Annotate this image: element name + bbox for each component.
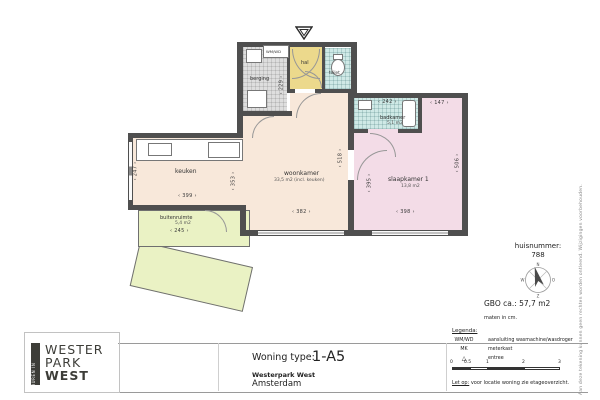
- dim-woonkamer-height: 353: [230, 172, 236, 191]
- svg-text:O: O: [552, 278, 555, 283]
- gbo-value: GBO ca.: 57,7 m2: [484, 299, 550, 308]
- floorplan-sheet: WM/WD berging hal toilet keuken woonkame…: [0, 0, 600, 400]
- keuken-label: keuken: [175, 168, 197, 175]
- berging-cabinet: [246, 49, 262, 63]
- entree-arrow-icon: [295, 26, 313, 40]
- logo-line3: WEST: [45, 370, 89, 383]
- woonkamer-floor-upper: [290, 93, 348, 118]
- wall-slaapkamer-top: [354, 93, 468, 98]
- woonkamer-label: woonkamer: [284, 170, 319, 177]
- wall-berging-left: [237, 42, 243, 138]
- wall-woon-slaap-upper: [348, 93, 354, 150]
- dim-keuken-width: 399: [178, 193, 197, 199]
- wall-woon-slaap-lower: [348, 180, 354, 236]
- wall-badkamer-bottom-left: [354, 129, 368, 133]
- slaapkamer-label: slaapkamer 1: [388, 176, 429, 183]
- svg-text:W: W: [521, 278, 525, 283]
- compass-icon: N O Z W: [520, 262, 556, 298]
- hal-floor: [290, 47, 322, 89]
- strip-divider-1: [218, 343, 219, 391]
- buitenruimte-area: 5,4 m2: [175, 221, 191, 226]
- dim-slaapkamer-width: 398: [396, 209, 415, 215]
- washer-label: WM/WD: [266, 49, 281, 54]
- window-woonkamer: [258, 231, 344, 235]
- dim-woonkamer-width: 382: [292, 209, 311, 215]
- badkamer-area: 5,1 m2: [387, 121, 403, 126]
- woning-type-value: 1-A5: [312, 349, 345, 365]
- dim-berging-height: 229: [278, 76, 284, 95]
- wall-badkamer-right: [418, 95, 422, 133]
- bathtub: [402, 100, 416, 127]
- wall-top: [237, 42, 357, 47]
- city-name: Amsterdam: [252, 379, 301, 389]
- buitenruimte-floor-lower: [130, 241, 253, 312]
- wall-slaapkamer-right: [462, 93, 468, 236]
- title-strip: [118, 343, 588, 393]
- wall-hal-toilet: [322, 47, 325, 91]
- woonkamer-area: 33,5 m2 (incl. keuken): [274, 178, 324, 183]
- wall-berging-bottom: [237, 111, 292, 116]
- wall-keuken-top: [128, 133, 243, 138]
- berging-label: berging: [250, 76, 269, 82]
- woning-type-label: Woning type:: [252, 352, 315, 363]
- berging-unit: [247, 90, 267, 108]
- maten-note: maten in cm.: [484, 315, 517, 321]
- hal-label: hal: [301, 60, 309, 66]
- huisnummer-value: 788: [503, 251, 573, 259]
- dim-badkamer-width: 242: [378, 99, 397, 105]
- project-name: Westerpark West: [252, 371, 315, 379]
- dim-slaapkamer-height: 395: [366, 174, 372, 193]
- logo-bar: HUREN IN: [31, 343, 40, 385]
- kitchen-sink: [148, 143, 172, 156]
- window-slaapkamer: [372, 231, 448, 235]
- dim-slaapkamer-height2: 506: [454, 154, 460, 173]
- kitchen-stove: [208, 142, 240, 158]
- logo: HUREN IN WESTER PARK WEST: [24, 332, 120, 393]
- huisnummer-label: huisnummer:: [503, 242, 573, 250]
- wall-keuken-bottom: [128, 205, 245, 210]
- wall-toilet-right: [351, 42, 357, 95]
- wall-hal-bottom-right: [315, 89, 325, 93]
- dim-buitenruimte-width: 245: [170, 228, 189, 234]
- dim-woonkamer-height2: 518: [337, 149, 343, 168]
- slaapkamer-area: 13,8 m2: [401, 184, 420, 189]
- buitenruimte-floor: [138, 210, 250, 247]
- svg-text:N: N: [537, 262, 540, 267]
- svg-text:Z: Z: [537, 294, 540, 299]
- dim-keuken-height: 247: [132, 162, 138, 181]
- bathroom-sink: [358, 100, 372, 110]
- legend-title: Legenda:: [452, 328, 477, 334]
- logo-vertical-text: HUREN IN: [31, 363, 36, 387]
- dim-slaapkamer-top: 147: [430, 100, 449, 106]
- toilet-label: toilet: [329, 70, 340, 75]
- strip-divider-2: [446, 343, 447, 391]
- wall-hal-bottom-left: [287, 89, 295, 93]
